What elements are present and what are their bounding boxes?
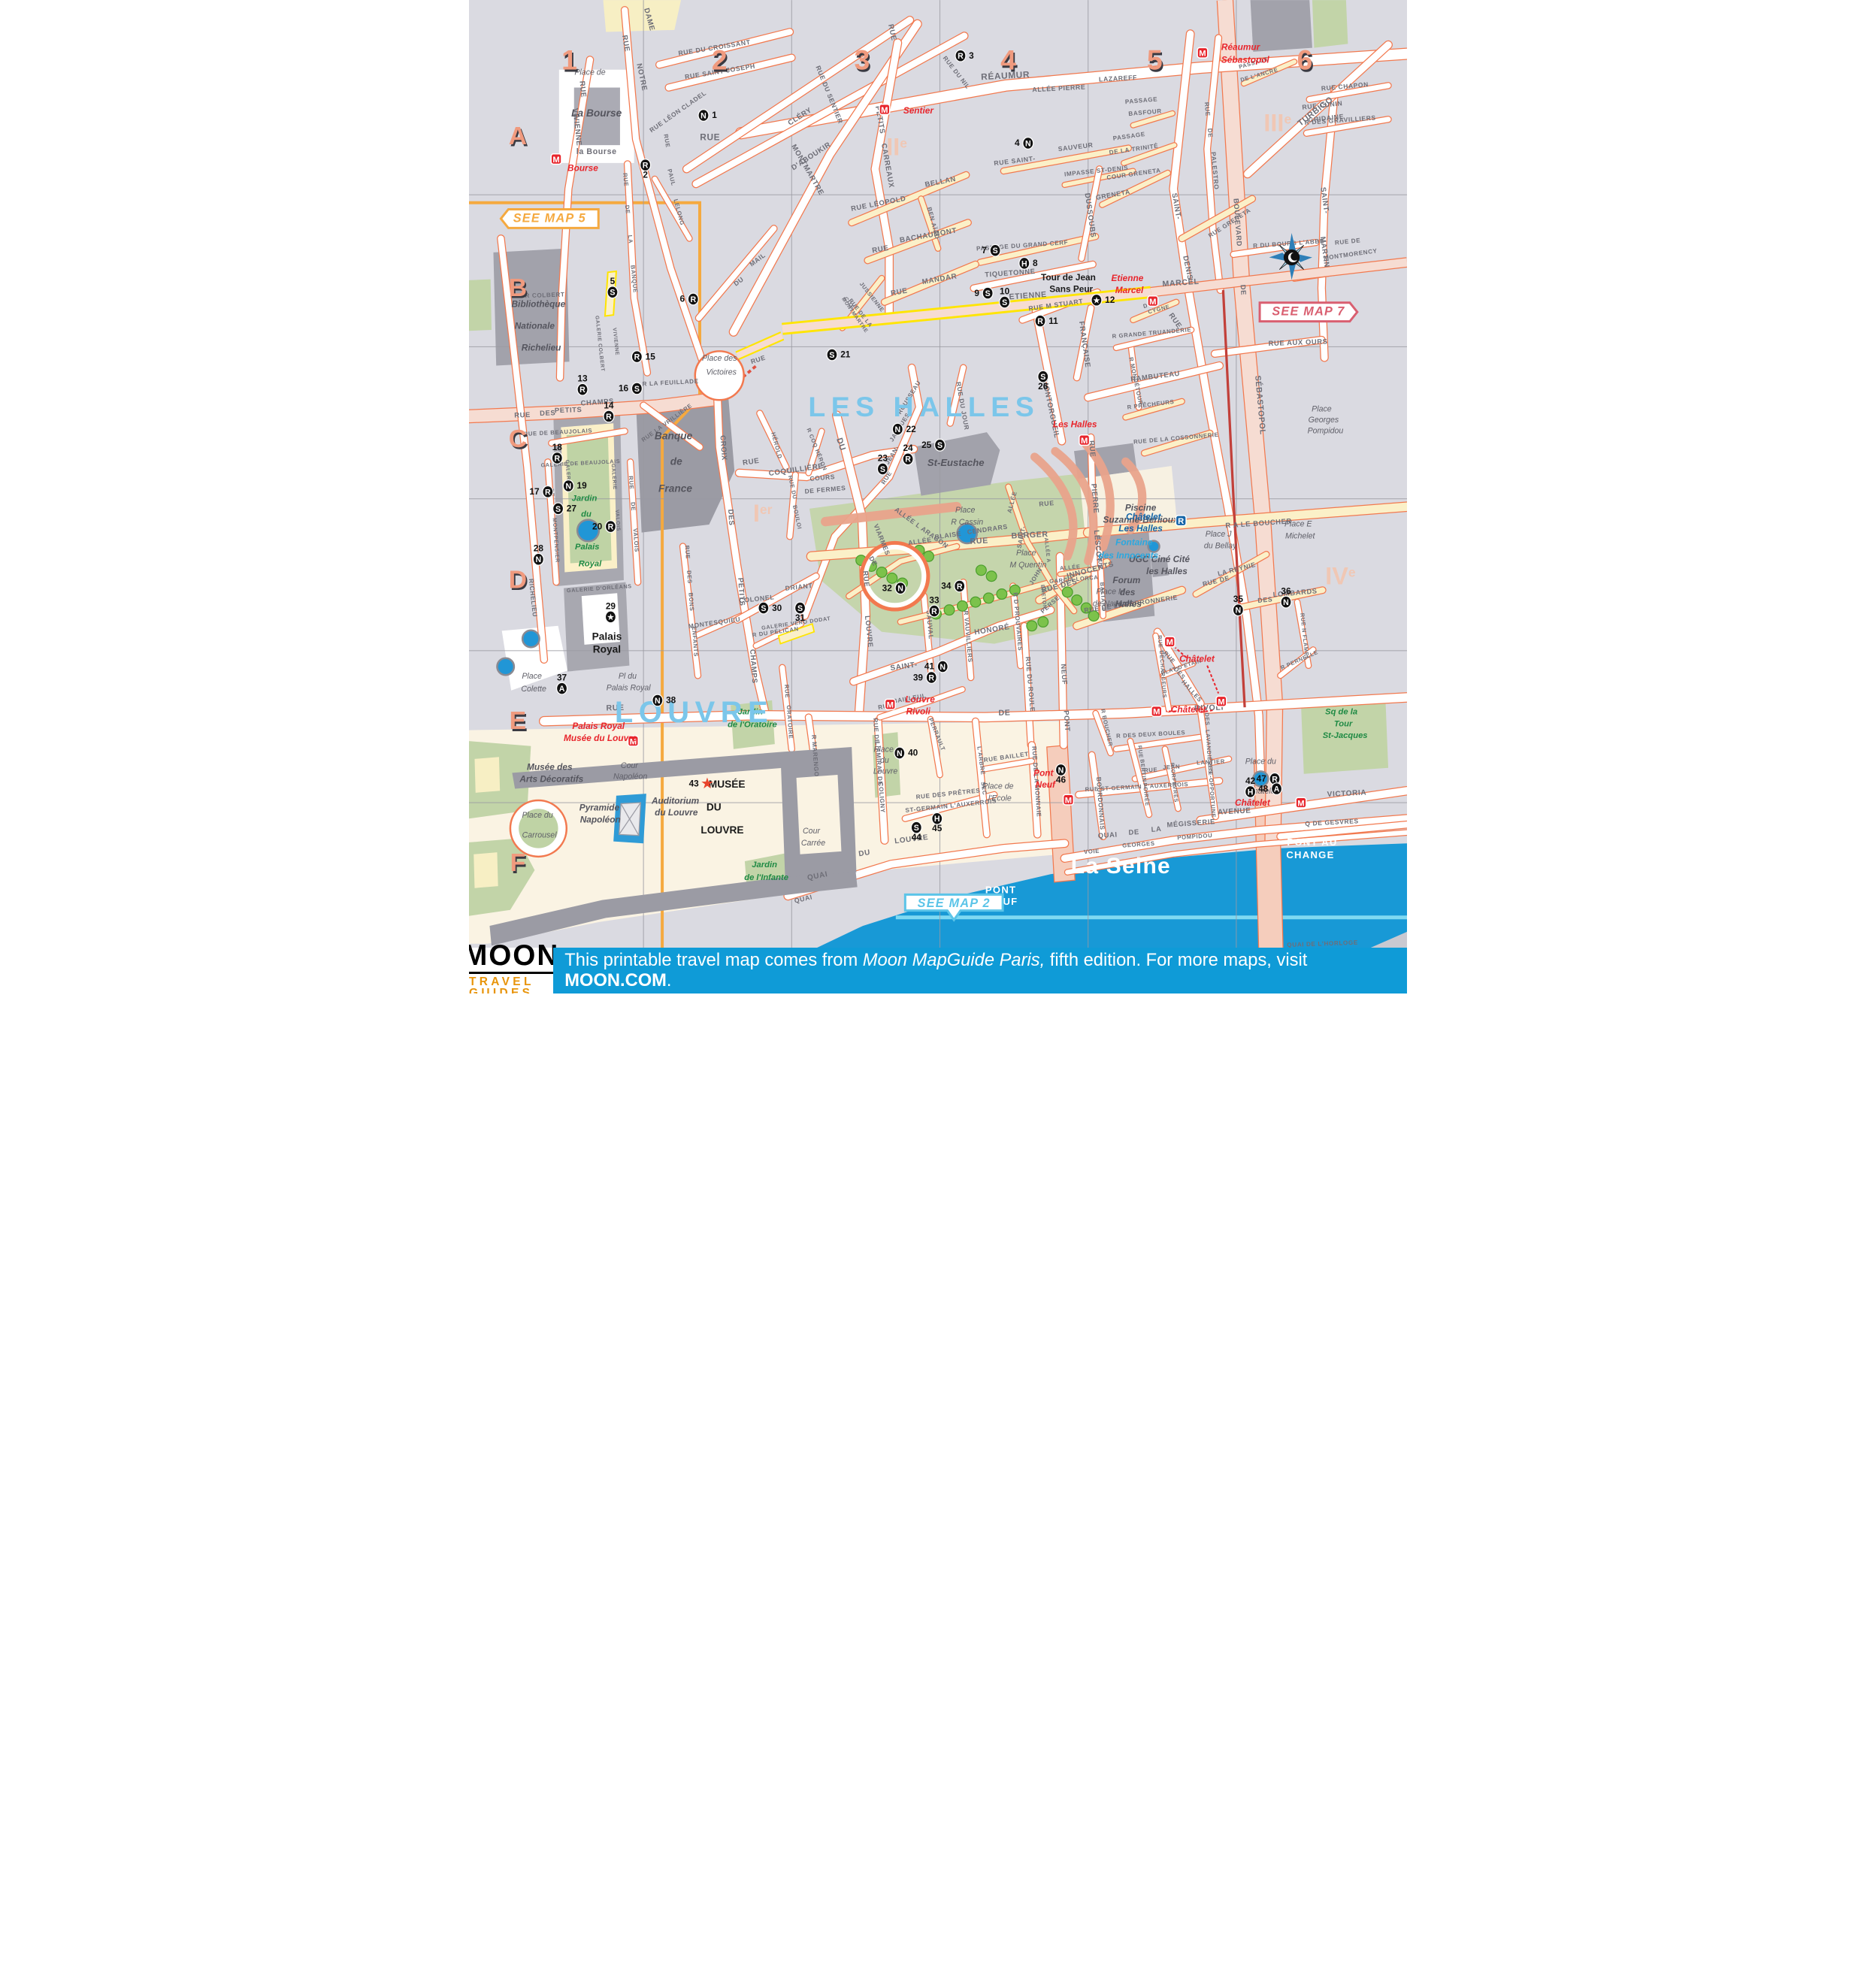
street-label: DE <box>624 204 631 214</box>
map-page: RUEVIVIENNEla BourseRUENOTREDAMERUE LÉON… <box>469 0 1407 993</box>
metro-name-label: Châtelet <box>1171 704 1207 715</box>
marker-number[interactable]: 40 <box>908 748 918 758</box>
poi-marker-46[interactable]: N46 <box>1055 764 1066 785</box>
marker-number[interactable]: 7 <box>982 245 987 256</box>
fontaine-des-innocents-label: des Innocents <box>1099 550 1159 561</box>
marker-number[interactable]: 22 <box>906 424 917 434</box>
tuileries-bldg-1 <box>474 757 500 793</box>
sight-star-icon[interactable]: ★ <box>1093 297 1100 305</box>
building-label: Richelieu <box>522 343 561 353</box>
marker-number[interactable]: 41 <box>924 661 935 672</box>
marker-letter[interactable]: N <box>1283 598 1289 607</box>
marker-number[interactable]: 5 <box>610 276 616 286</box>
poi-marker-4[interactable]: N4 <box>1015 138 1033 150</box>
rer-station-label: Les Halles <box>1118 523 1163 534</box>
marker-number[interactable]: 45 <box>932 823 943 833</box>
moon-com-link[interactable]: MOON.COM <box>564 971 667 990</box>
grid-number: 4 <box>1000 44 1016 76</box>
marker-number[interactable]: 42 <box>1245 776 1256 786</box>
marker-letter[interactable]: H <box>1021 259 1027 268</box>
grid-number: 1 <box>561 44 577 76</box>
poi-label: LOUVRE <box>700 824 743 836</box>
tree <box>976 565 987 576</box>
district-label: LES HALLES <box>808 391 1039 422</box>
marker-number[interactable]: 27 <box>567 504 577 514</box>
sight-star-icon[interactable]: ★ <box>607 614 614 622</box>
marker-number[interactable]: 14 <box>604 400 614 410</box>
marker-number[interactable]: 18 <box>552 442 563 452</box>
marker-number[interactable]: 12 <box>1105 295 1115 305</box>
place-label: Place des <box>702 354 737 363</box>
metro-name-label: Marcel <box>1115 285 1144 295</box>
water-label: CHANGE <box>1286 849 1334 860</box>
metro-station-chatelet-les-halles[interactable]: R <box>1176 516 1186 526</box>
metro-station-sentier[interactable]: MSentier <box>879 104 934 116</box>
marker-number[interactable]: 9 <box>974 288 979 298</box>
marker-letter[interactable]: N <box>1025 139 1031 148</box>
marker-letter[interactable]: R <box>634 353 640 362</box>
place-label: du <box>880 756 889 765</box>
metro-name-label: Neuf <box>1036 779 1056 790</box>
marker-letter[interactable]: R <box>545 488 551 497</box>
metro-name-label: Châtelet <box>1179 653 1215 664</box>
metro-icon-letter[interactable]: M <box>881 106 888 115</box>
tuileries-bldg-2 <box>474 852 498 888</box>
place-label: Pompidou <box>1308 426 1344 435</box>
poi-label: DU <box>707 802 722 813</box>
metro-name-label: Etienne <box>1112 273 1144 283</box>
street-label: BONS <box>687 592 695 611</box>
street-label: PETITS <box>555 406 582 414</box>
street-label: LA <box>627 234 634 243</box>
place-label: Place <box>1312 404 1332 413</box>
park-label: de l'Infante <box>744 873 788 882</box>
marker-number[interactable]: 11 <box>1048 316 1058 326</box>
park-label: Palais <box>575 543 599 552</box>
street-label: RUE <box>577 80 587 98</box>
marker-number[interactable]: 35 <box>1233 594 1244 604</box>
street-label: QUAI <box>1097 830 1118 839</box>
footer-bar: This printable travel map comes from Moo… <box>553 948 1407 993</box>
street-label: la Bourse <box>576 147 617 156</box>
marker-letter[interactable]: N <box>940 663 946 672</box>
metro-icon-letter[interactable]: M <box>1166 638 1173 647</box>
marker-letter[interactable]: R <box>957 582 963 591</box>
colette-dot-2 <box>497 658 513 675</box>
park-label: Sq de la <box>1325 707 1357 716</box>
metro-icon-letter[interactable]: M <box>552 156 559 165</box>
place-label: Place de <box>574 68 605 77</box>
street-label: DES <box>1257 595 1273 604</box>
grid-letter: E <box>510 707 526 735</box>
street-label: RUE <box>861 570 870 588</box>
building-label: La Bourse <box>571 107 622 119</box>
place-label: Louvre <box>873 767 897 776</box>
metro-icon-letter[interactable]: M <box>1149 298 1156 307</box>
green-tr <box>1312 0 1348 47</box>
poi-label: Royal <box>593 643 621 655</box>
marker-letter[interactable]: N <box>565 482 571 491</box>
footer-text: This printable travel map comes from Moo… <box>564 951 1407 991</box>
marker-number[interactable]: 28 <box>534 543 544 554</box>
rer-station-label: Châtelet <box>1126 511 1162 522</box>
metro-icon-letter[interactable]: M <box>1218 697 1224 706</box>
marker-number[interactable]: 4 <box>1015 138 1020 148</box>
marker-letter[interactable]: S <box>993 246 998 256</box>
street-label: LA <box>1151 825 1161 833</box>
banner-text[interactable]: SEE MAP 5 <box>513 211 586 225</box>
place-label: M Quentin <box>1009 561 1046 570</box>
footer: MOON TRAVEL GUIDES This printable travel… <box>469 948 1407 993</box>
marker-number[interactable]: 46 <box>1056 774 1067 785</box>
place-label: Pl du <box>619 672 637 681</box>
place-label: Georges <box>1309 416 1339 425</box>
building-label: Banque <box>655 430 693 441</box>
marker-number[interactable]: 16 <box>619 383 629 394</box>
street-label: NEUF <box>1060 664 1069 685</box>
see-map-banner-5[interactable]: SEE MAP 5 <box>501 209 598 228</box>
marker-letter[interactable]: N <box>1236 606 1242 615</box>
place-label: Cour <box>803 827 820 836</box>
poi-marker-6[interactable]: R6 <box>679 293 698 305</box>
grid-number: 6 <box>1297 44 1313 76</box>
marker-number[interactable]: 15 <box>646 351 656 361</box>
place-label: Place <box>873 746 894 755</box>
poi-label: Tour de Jean <box>1041 272 1096 283</box>
metro-icon-letter[interactable]: M <box>1081 437 1088 446</box>
marker-letter[interactable]: N <box>897 749 903 758</box>
grid-letter: A <box>509 122 527 150</box>
street-label: DES <box>726 509 735 526</box>
place-label: Place du <box>1245 758 1276 767</box>
metro-name-label: Châtelet <box>1235 797 1271 808</box>
district-label: LOUVRE <box>615 696 773 729</box>
sight-star-icon[interactable]: ★ <box>700 776 714 792</box>
park-label: du <box>581 510 592 519</box>
street-label: RUE <box>1136 745 1145 758</box>
tree <box>1027 621 1037 631</box>
place-label: l'Ecole <box>988 794 1012 803</box>
poi-marker-3[interactable]: R3 <box>955 50 974 62</box>
street-label: PONT <box>1062 710 1071 732</box>
marker-letter[interactable]: S <box>761 604 766 613</box>
metro-name-label: Louvre <box>905 694 935 705</box>
street-label: RUE <box>783 684 791 698</box>
tree <box>984 593 994 603</box>
metro-name-label: Réaumur <box>1221 41 1261 52</box>
marker-number[interactable]: 38 <box>666 695 676 706</box>
moon-travel-guides-logo[interactable]: MOON TRAVEL GUIDES <box>469 948 553 993</box>
building-label: Napoléon <box>580 814 621 824</box>
place-label: du Bellay <box>1204 542 1237 551</box>
park-label: Jardin <box>572 494 598 503</box>
building-label: de <box>670 456 682 467</box>
poi-marker-31[interactable]: S31 <box>795 602 806 623</box>
metro-icon-letter[interactable]: M <box>887 700 894 709</box>
metro-name-label: Musée du Louvre <box>564 733 637 743</box>
street-label: RUE <box>1203 101 1212 116</box>
marker-letter[interactable]: R <box>608 523 614 532</box>
marker-number[interactable]: 29 <box>606 600 616 611</box>
marker-number[interactable]: 31 <box>795 612 806 623</box>
metro-name-label: Bourse <box>567 163 598 174</box>
street-label: RUE <box>970 536 988 546</box>
metro-icon-letter[interactable]: M <box>1153 708 1160 717</box>
marker-number[interactable]: 32 <box>882 582 893 593</box>
building-label: du Louvre <box>655 807 698 818</box>
marker-number[interactable]: 6 <box>679 294 685 304</box>
metro-station-chatelet-navarre[interactable]: M <box>1164 637 1175 647</box>
street-label: RUE <box>622 173 630 187</box>
marker-number[interactable]: 17 <box>529 486 540 497</box>
metro-name-label: Les Halles <box>1053 419 1097 429</box>
place-label: Carrée <box>801 839 825 848</box>
place-label: Napoléon <box>613 772 647 781</box>
street-label: RUE <box>628 476 635 490</box>
building-label: Musée des <box>527 761 573 772</box>
grid-letter: C <box>509 425 527 453</box>
fontaine-des-innocents-label: Fontaine <box>1115 537 1153 548</box>
building-label: Arts Décoratifs <box>519 773 583 784</box>
building-label: les Halles <box>1146 566 1188 576</box>
poi-marker-8[interactable]: H8 <box>1019 258 1038 270</box>
marker-letter[interactable]: R <box>931 607 937 616</box>
marker-letter[interactable]: S <box>880 465 885 474</box>
building-label: des <box>1120 587 1136 597</box>
tree <box>958 601 968 612</box>
building-label: Auditorium <box>651 795 700 806</box>
colette-dot-1 <box>522 631 539 647</box>
tree <box>1072 595 1082 606</box>
marker-letter[interactable]: R <box>1037 317 1043 326</box>
park-label: St-Jacques <box>1323 731 1368 740</box>
marker-number[interactable]: 21 <box>840 349 851 360</box>
street-label: RUE <box>1039 499 1054 508</box>
marker-number[interactable]: 13 <box>577 374 588 384</box>
place-label: Palais Royal <box>607 684 652 693</box>
metro-icon-letter[interactable]: R <box>1178 517 1184 526</box>
tree <box>986 571 997 582</box>
place-label: Victoires <box>706 367 737 377</box>
street-label: RUE <box>684 545 691 559</box>
marker-letter[interactable]: S <box>937 441 943 450</box>
moon-logo-word: MOON <box>469 942 559 974</box>
park-label: Royal <box>579 560 602 569</box>
marker-letter[interactable]: S <box>610 289 615 298</box>
marker-number[interactable]: 19 <box>577 480 588 491</box>
marker-letter[interactable]: H <box>1248 788 1254 797</box>
marker-number[interactable]: 47 <box>1257 773 1267 784</box>
street-label: RUE <box>700 132 720 143</box>
marker-number[interactable]: 23 <box>878 452 888 463</box>
metro-name-label: Sentier <box>903 105 935 116</box>
tree <box>887 573 897 584</box>
compass-crescent-mask <box>1291 253 1299 261</box>
marker-number[interactable]: 1 <box>712 110 717 120</box>
marker-letter[interactable]: S <box>634 385 640 394</box>
marker-number[interactable]: 8 <box>1033 258 1038 268</box>
street-label: DES <box>540 409 555 417</box>
grid-letter: F <box>510 849 526 877</box>
poi-marker-26[interactable]: S26 <box>1038 370 1048 392</box>
building-label: Pyramide <box>579 803 620 813</box>
building-label: Nationale <box>515 321 555 331</box>
bib-green-left <box>469 280 492 331</box>
metro-name-label: Pont <box>1033 767 1054 778</box>
poi-marker-1[interactable]: N1 <box>698 110 717 122</box>
marker-number[interactable]: 48 <box>1258 783 1269 794</box>
place-label: R Cassin <box>951 518 983 527</box>
poi-label: MUSÉE <box>709 778 746 790</box>
place-label: Place <box>955 506 976 515</box>
marker-number[interactable]: 36 <box>1281 585 1291 596</box>
banner-text[interactable]: SEE MAP 2 <box>918 897 991 910</box>
street-label: DE <box>998 708 1010 718</box>
marker-letter[interactable]: R <box>579 386 585 395</box>
marker-letter[interactable]: R <box>928 674 934 683</box>
poi-marker-45[interactable]: H45 <box>932 812 943 833</box>
street-label: DE <box>629 502 637 512</box>
building-label: France <box>658 482 692 494</box>
poi-marker-44[interactable]: S44 <box>911 821 921 842</box>
street-label: CROIX <box>719 435 728 461</box>
park-label: Jardin <box>752 860 777 870</box>
marker-letter[interactable]: S <box>985 289 991 298</box>
marker-letter[interactable]: N <box>897 585 903 594</box>
street-label: DE <box>1239 284 1248 295</box>
marker-letter[interactable]: N <box>700 111 707 120</box>
marker-letter[interactable]: R <box>958 52 964 61</box>
marker-letter[interactable]: S <box>555 505 561 514</box>
tree <box>970 597 981 607</box>
marker-letter[interactable]: A <box>559 685 565 694</box>
marker-number[interactable]: 10 <box>1000 286 1010 296</box>
grid-number: 2 <box>712 44 728 76</box>
building-label: Halles <box>1115 599 1142 609</box>
street-label: DES <box>685 570 693 584</box>
place-label: Colette <box>521 685 546 694</box>
tree <box>876 567 887 578</box>
marker-letter[interactable]: R <box>606 413 612 422</box>
poi-label: Sans Peur <box>1049 284 1093 295</box>
street-label: AVENUE <box>1218 806 1251 816</box>
metro-icon-letter[interactable]: M <box>1199 49 1206 58</box>
place-label: Place E <box>1284 520 1312 529</box>
marker-number[interactable]: 34 <box>941 581 952 591</box>
marker-number[interactable]: 2 <box>643 169 648 180</box>
moon-logo-subtitle: TRAVEL GUIDES <box>469 976 553 993</box>
marker-letter[interactable]: R <box>690 295 696 304</box>
grid-letter: B <box>509 274 527 302</box>
marker-letter[interactable]: S <box>829 351 834 360</box>
place-label: Michelet <box>1285 532 1316 541</box>
grid-number: 5 <box>1147 44 1163 76</box>
marker-number[interactable]: 39 <box>913 672 924 682</box>
place-label: Place <box>1016 549 1036 558</box>
paris-map-canvas: RUEVIVIENNEla BourseRUENOTREDAMERUE LÉON… <box>469 0 1407 993</box>
park-label: Tour <box>1334 719 1353 728</box>
marker-letter[interactable]: N <box>895 425 901 434</box>
poi-label: Palais <box>592 631 622 642</box>
street-label: DE <box>1206 128 1214 138</box>
metro-name-label: Palais Royal <box>572 721 625 731</box>
street-label: DE <box>1128 828 1139 836</box>
marker-number[interactable]: 3 <box>969 50 974 61</box>
tree <box>1038 617 1048 628</box>
street-label: RUE <box>514 411 531 419</box>
building-label: St-Eustache <box>927 457 985 468</box>
marker-number[interactable]: 26 <box>1038 381 1048 392</box>
metro-name-label: Rivoli <box>906 706 931 716</box>
marker-letter[interactable]: S <box>1002 298 1007 307</box>
metro-name-label: Sébastopol <box>1221 54 1270 65</box>
marker-number[interactable]: 33 <box>929 594 940 605</box>
water-label: La Seine <box>1071 854 1171 879</box>
water-label: PONT AU <box>1287 836 1337 848</box>
grid-letter: D <box>509 567 527 594</box>
tree <box>944 605 955 615</box>
marker-number[interactable]: 25 <box>921 440 932 450</box>
poi-marker-9[interactable]: S9 <box>974 287 993 299</box>
grid-number: 3 <box>854 44 870 76</box>
marker-number[interactable]: 30 <box>772 603 782 613</box>
metro-icon-letter[interactable]: M <box>1297 799 1304 808</box>
poi-marker-7[interactable]: S7 <box>982 244 1000 256</box>
banner-text[interactable]: SEE MAP 7 <box>1272 305 1345 319</box>
marker-letter[interactable]: N <box>536 555 542 564</box>
place-label: Carrousel <box>522 830 558 839</box>
marker-letter[interactable]: R <box>554 454 560 463</box>
place-label: Place J <box>1206 530 1232 539</box>
marker-number[interactable]: 37 <box>557 672 567 682</box>
place-label: Place <box>522 672 542 681</box>
marker-number[interactable]: 20 <box>592 521 603 531</box>
place-label: Place du <box>522 811 552 820</box>
building-label: Forum <box>1112 575 1140 585</box>
yellow-bldg-top-left <box>603 0 681 32</box>
street-label: RUE <box>1157 635 1164 649</box>
tree <box>997 589 1007 600</box>
marker-number[interactable]: 24 <box>903 443 913 453</box>
see-map-banner-7[interactable]: SEE MAP 7 <box>1260 303 1357 322</box>
marker-letter[interactable]: N <box>655 697 661 706</box>
marker-letter[interactable]: A <box>1274 785 1280 794</box>
marker-number[interactable]: 43 <box>689 779 700 789</box>
marker-letter[interactable]: R <box>905 455 911 464</box>
marker-number[interactable]: 44 <box>912 832 922 842</box>
metro-icon-letter[interactable]: M <box>1065 796 1072 805</box>
place-label: Place de <box>982 782 1013 791</box>
place-label: Cour <box>621 761 638 770</box>
